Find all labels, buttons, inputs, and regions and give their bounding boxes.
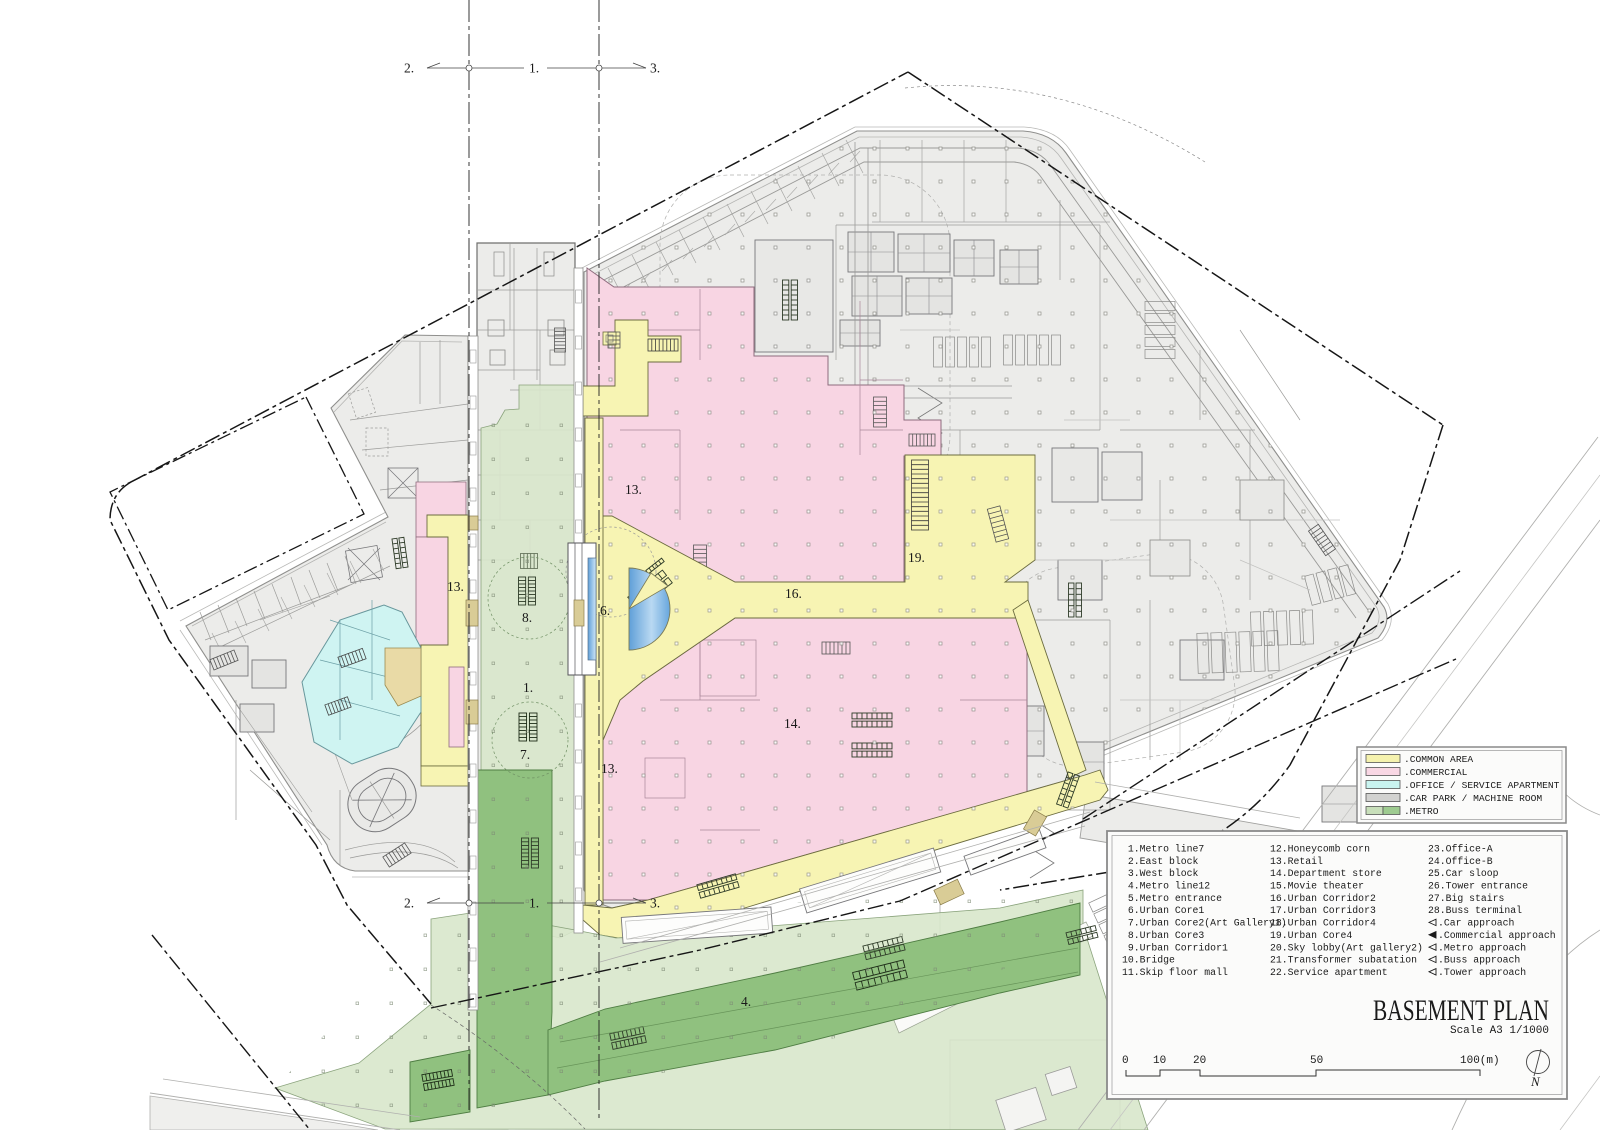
svg-text:17.Urban Corridor3: 17.Urban Corridor3 — [1270, 905, 1376, 916]
svg-text:26.Tower entrance: 26.Tower entrance — [1428, 881, 1528, 892]
svg-text:28.Buss terminal: 28.Buss terminal — [1428, 905, 1522, 916]
svg-text:10: 10 — [1153, 1055, 1166, 1067]
svg-text:6.Urban Core1: 6.Urban Core1 — [1122, 905, 1204, 916]
svg-text:13.Retail: 13.Retail — [1270, 856, 1323, 867]
svg-text:13.: 13. — [447, 579, 464, 594]
svg-text:14.Department store: 14.Department store — [1270, 868, 1382, 879]
svg-text:N: N — [1530, 1074, 1541, 1089]
svg-text:8.Urban Core3: 8.Urban Core3 — [1122, 930, 1204, 941]
svg-text:1.: 1. — [529, 896, 539, 911]
svg-text:21.Transformer subatation: 21.Transformer subatation — [1270, 955, 1417, 966]
svg-text:13.: 13. — [625, 482, 642, 497]
svg-text:0: 0 — [1122, 1055, 1129, 1067]
svg-text:6.: 6. — [600, 603, 610, 618]
svg-text:1.: 1. — [529, 61, 539, 76]
svg-text:13.: 13. — [601, 761, 618, 776]
svg-text:5.Metro entrance: 5.Metro entrance — [1122, 893, 1222, 904]
svg-text:2.: 2. — [404, 896, 414, 911]
svg-text:.Car approach: .Car approach — [1438, 918, 1515, 929]
svg-text:16.: 16. — [785, 586, 802, 601]
svg-text:1.: 1. — [523, 680, 533, 695]
svg-text:7.Urban Core2(Art Gallery1): 7.Urban Core2(Art Gallery1) — [1122, 918, 1287, 929]
svg-text:19.Urban Core4: 19.Urban Core4 — [1270, 930, 1352, 941]
svg-text:.COMMON AREA: .COMMON AREA — [1404, 754, 1473, 765]
svg-text:16.Urban Corridor2: 16.Urban Corridor2 — [1270, 893, 1376, 904]
svg-text:2.East block: 2.East block — [1122, 856, 1199, 867]
svg-text:4.Metro line12: 4.Metro line12 — [1122, 881, 1210, 892]
svg-text:22.Service apartment: 22.Service apartment — [1270, 967, 1388, 978]
svg-text:24.Office-B: 24.Office-B — [1428, 856, 1493, 867]
svg-text:19.: 19. — [908, 550, 925, 565]
svg-text:23.Office-A: 23.Office-A — [1428, 844, 1493, 855]
svg-text:11.Skip floor mall: 11.Skip floor mall — [1122, 967, 1228, 978]
svg-text:.METRO: .METRO — [1404, 806, 1439, 817]
svg-text:1.Metro line7: 1.Metro line7 — [1122, 844, 1204, 855]
svg-text:3.West block: 3.West block — [1122, 868, 1199, 879]
svg-text:.Buss approach: .Buss approach — [1438, 955, 1520, 966]
svg-text:8.: 8. — [522, 610, 532, 625]
svg-text:20.Sky lobby(Art gallery2): 20.Sky lobby(Art gallery2) — [1270, 942, 1423, 953]
svg-text:3.: 3. — [650, 61, 660, 76]
svg-text:14.: 14. — [784, 716, 801, 731]
svg-text:7.: 7. — [520, 747, 530, 762]
svg-text:15.Movie theater: 15.Movie theater — [1270, 881, 1364, 892]
svg-text:27.Big stairs: 27.Big stairs — [1428, 893, 1505, 904]
svg-text:Scale A3 1/1000: Scale A3 1/1000 — [1450, 1025, 1549, 1037]
svg-text:100(m): 100(m) — [1460, 1055, 1500, 1067]
svg-text:25.Car sloop: 25.Car sloop — [1428, 868, 1499, 879]
svg-text:.COMMERCIAL: .COMMERCIAL — [1404, 767, 1468, 778]
svg-text:.Tower approach: .Tower approach — [1438, 967, 1526, 978]
svg-text:9.Urban Corridor1: 9.Urban Corridor1 — [1122, 942, 1228, 953]
svg-text:12.Honeycomb corn: 12.Honeycomb corn — [1270, 844, 1370, 855]
svg-text:2.: 2. — [404, 61, 414, 76]
svg-text:50: 50 — [1310, 1055, 1323, 1067]
svg-text:10.Bridge: 10.Bridge — [1122, 955, 1175, 966]
svg-text:.Commercial approach: .Commercial approach — [1438, 930, 1556, 941]
svg-text:.Metro approach: .Metro approach — [1438, 942, 1526, 953]
svg-text:20: 20 — [1193, 1055, 1206, 1067]
svg-text:BASEMENT PLAN: BASEMENT PLAN — [1373, 994, 1549, 1027]
svg-text:.CAR PARK / MACHINE ROOM: .CAR PARK / MACHINE ROOM — [1404, 793, 1542, 804]
svg-text:4.: 4. — [741, 994, 751, 1009]
svg-text:18.Urban Corridor4: 18.Urban Corridor4 — [1270, 918, 1376, 929]
svg-text:3.: 3. — [650, 896, 660, 911]
svg-text:.OFFICE / SERVICE APARTMENT: .OFFICE / SERVICE APARTMENT — [1404, 780, 1560, 791]
